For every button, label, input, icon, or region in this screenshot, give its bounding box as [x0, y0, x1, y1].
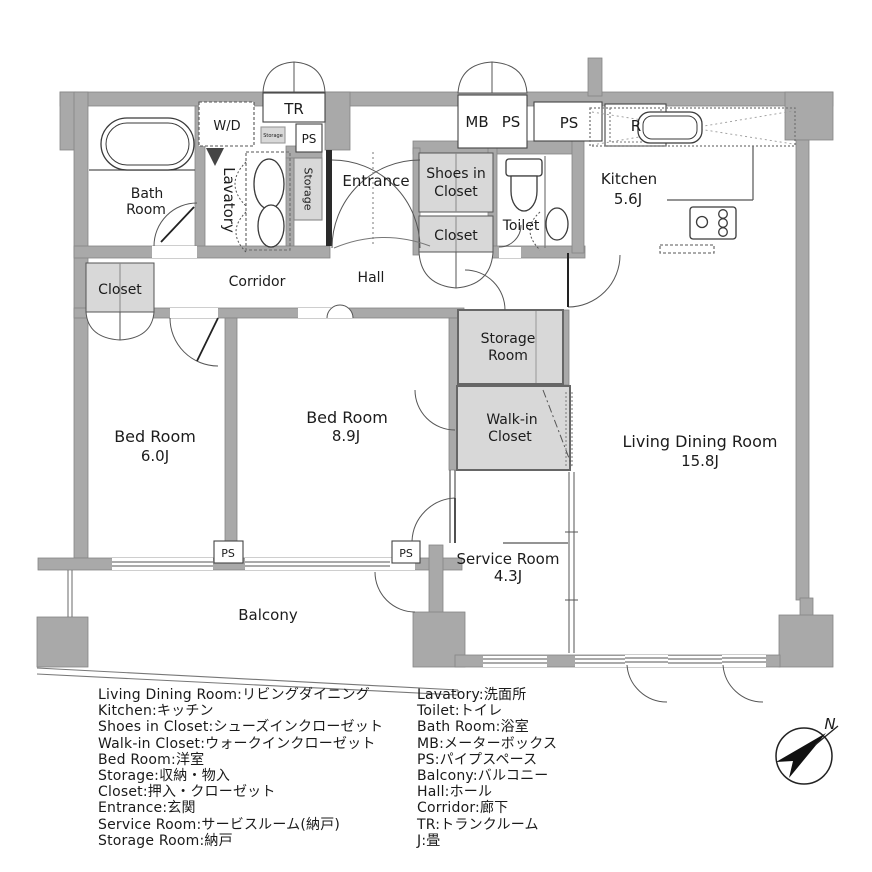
service-door-arc	[412, 498, 455, 541]
label-hall: Hall	[358, 270, 385, 286]
legend-column-left: Living Dining Room:リビングダイニング Kitchen:キッチ…	[98, 687, 383, 849]
legend-item: Bath Room:浴室	[417, 719, 557, 735]
label-bed-a-size: 6.0J	[141, 447, 169, 465]
legend-item: Service Room:サービスルーム(納戸)	[98, 817, 383, 833]
compass: N	[776, 715, 838, 784]
bed-a-door-leaf	[197, 318, 218, 361]
label-corridor: Corridor	[229, 274, 286, 290]
legend-item: Balcony:バルコニー	[417, 768, 557, 784]
label-kitchen-size: 5.6J	[614, 190, 642, 208]
label-storage-mini: Storage	[263, 133, 283, 139]
toilet-bowl-icon	[511, 176, 537, 211]
legend-item: Shoes in Closet:シューズインクローゼット	[98, 719, 383, 735]
balcony-outline	[37, 570, 458, 695]
legend-item: Kitchen:キッチン	[98, 703, 383, 719]
closet-upper-wing-left	[419, 252, 456, 288]
legend-column-right: Lavatory:洗面所 Toilet:トイレ Bath Room:浴室 MB:…	[417, 687, 557, 849]
label-storage-room-line1: Storage	[481, 331, 536, 347]
kitchen-hatch-strip	[660, 245, 714, 253]
label-ldk-size: 15.8J	[681, 452, 719, 470]
ldk-door-arc	[568, 255, 620, 307]
closet-left-wing-right	[120, 312, 154, 340]
label-mb: MB	[465, 113, 488, 131]
label-ldk: Living Dining Room	[623, 432, 778, 451]
wall-balcony-right	[429, 545, 443, 615]
label-bed-b-size: 8.9J	[332, 427, 360, 445]
legend-item: Walk-in Closet:ウォークインクローゼット	[98, 736, 383, 752]
label-closet-upper: Closet	[434, 228, 478, 244]
mb-wing-door-left	[458, 62, 492, 93]
legend-item: Hall:ホール	[417, 784, 557, 800]
window-ldk-2	[668, 656, 722, 667]
label-tr: TR	[283, 100, 304, 118]
storage-room-box	[458, 310, 563, 384]
legend-item: Closet:押入・クローゼット	[98, 784, 383, 800]
label-storage-room-line2: Room	[488, 348, 528, 364]
label-wd: W/D	[213, 119, 240, 134]
wall-corner-top-right	[785, 92, 833, 140]
legend-item: TR:トランクルーム	[417, 817, 557, 833]
label-shoes-line2: Closet	[434, 184, 478, 200]
label-walkin-line1: Walk-in	[486, 412, 537, 428]
label-bed-a: Bed Room	[114, 427, 196, 446]
mb-wing-door-right	[492, 62, 527, 93]
ldk-balcony-door-arc-1	[627, 665, 667, 702]
legend-item: Corridor:廊下	[417, 800, 557, 816]
tr-wing-door-left	[263, 62, 294, 92]
wd-door-arrow	[206, 148, 224, 166]
opening-bath-door	[152, 246, 197, 258]
wall-right-stub	[800, 598, 813, 617]
label-bath-line1: Bath	[131, 186, 164, 202]
floorplan-page: N Bath Room W/D TR PS Storage Storage La…	[0, 0, 872, 872]
ldk-balcony-door-arc-2	[723, 665, 763, 702]
lavatory-sink-1	[254, 159, 284, 209]
legend-item: MB:メーターボックス	[417, 736, 557, 752]
label-lavatory: Lavatory	[220, 167, 238, 233]
legend-item: Bed Room:洋室	[98, 752, 383, 768]
wall-balcony-pillar	[37, 617, 88, 667]
wall-top-left-chunk	[60, 92, 76, 150]
window-bed-b	[245, 558, 390, 570]
legend-item: Storage:収納・物入	[98, 768, 383, 784]
door-ldk-balcony-1	[625, 655, 668, 667]
legend-item: Lavatory:洗面所	[417, 687, 557, 703]
legend-item: Entrance:玄関	[98, 800, 383, 816]
balcony-door-arc	[375, 572, 415, 612]
label-balcony: Balcony	[238, 606, 298, 624]
entrance-door-frame	[326, 150, 332, 246]
label-shoes-line1: Shoes in	[426, 166, 485, 182]
label-kitchen: Kitchen	[601, 170, 657, 188]
label-r: R	[631, 117, 641, 135]
label-walkin-line2: Closet	[488, 429, 532, 445]
closet-upper-wing-right	[456, 252, 493, 288]
wall-tr-right	[325, 92, 350, 150]
balcony-left-rail	[68, 570, 72, 617]
label-storage-vertical: Storage	[302, 167, 315, 210]
label-bed-b: Bed Room	[306, 408, 388, 427]
label-ps-top: PS	[560, 114, 579, 132]
label-entrance: Entrance	[342, 172, 409, 190]
label-toilet: Toilet	[502, 218, 540, 234]
compass-north-label: N	[824, 715, 835, 733]
wall-lavatory-right	[286, 158, 294, 246]
window-ldk-left	[565, 472, 578, 653]
legend-item: PS:パイプスペース	[417, 752, 557, 768]
kitchen-counter-edge	[667, 146, 753, 200]
window-ldk-1	[575, 656, 625, 667]
label-closet-left: Closet	[98, 282, 142, 298]
wall-left	[74, 92, 88, 558]
label-service-size: 4.3J	[494, 567, 522, 585]
bathtub-icon	[101, 118, 194, 170]
opening-toilet-door	[499, 247, 521, 258]
label-ps-small: PS	[302, 132, 317, 146]
label-ps-bottom1: PS	[221, 547, 235, 560]
tr-wing-door-right	[294, 62, 325, 92]
bath-door-leaf	[161, 207, 194, 242]
window-service	[483, 656, 547, 667]
legend-item: J:畳	[417, 833, 557, 849]
lavatory-sink-2	[258, 205, 284, 247]
bed-a-door-arc	[170, 318, 218, 366]
label-ps-bottom2: PS	[399, 547, 413, 560]
label-bath-line2: Room	[126, 202, 166, 218]
wall-bedroom-divider	[225, 318, 237, 545]
window-bed-a	[112, 558, 213, 570]
opening-bed-a-door	[170, 308, 218, 318]
legend-item: Toilet:トイレ	[417, 703, 557, 719]
toilet-basin	[546, 208, 568, 240]
door-ldk-balcony-2	[722, 655, 766, 667]
walkin-closet-box	[457, 386, 570, 470]
wall-top-band	[60, 92, 833, 106]
bed-b-sliding-door-bump	[327, 305, 353, 318]
label-service: Service Room	[457, 550, 560, 568]
wall-corner-bottom-right	[779, 615, 833, 667]
compass-needle	[776, 733, 826, 778]
wall-corridor-top	[74, 246, 330, 258]
toilet-tank	[506, 159, 542, 176]
legend-item: Storage Room:納戸	[98, 833, 383, 849]
wall-stub-top-middle	[588, 58, 602, 96]
label-ps-mb: PS	[502, 113, 521, 131]
wall-right	[796, 140, 809, 600]
legend-item: Living Dining Room:リビングダイニング	[98, 687, 383, 703]
closet-left-wing-left	[86, 312, 120, 340]
